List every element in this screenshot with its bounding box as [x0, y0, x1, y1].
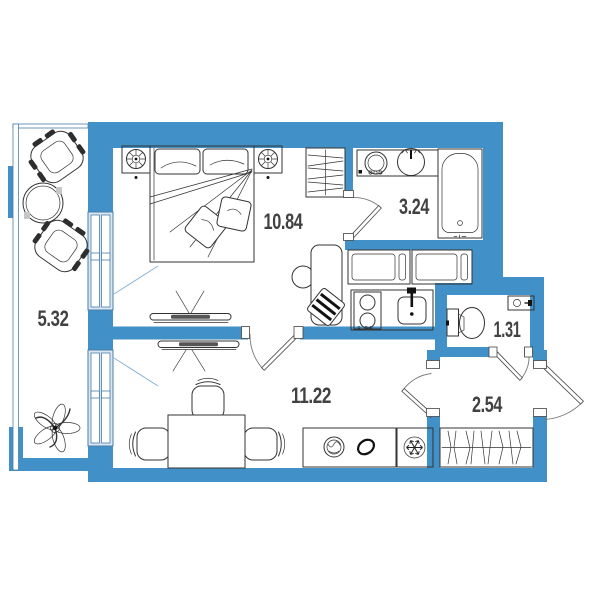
room-label-living: 11.22: [291, 383, 331, 408]
window-opening-indicator: [114, 266, 158, 294]
kitchen-sink-icon: [398, 288, 426, 325]
floor-plan-page: 5.32 10.84 3.24 11.22 1.31 2.54: [0, 0, 600, 600]
hall-wardrobe-icon: [440, 428, 533, 467]
window-opening-indicator: [114, 358, 158, 386]
upper-cabinet-icon: [412, 250, 472, 284]
kitchen-counter: [351, 288, 433, 331]
room-label-balcony: 5.32: [38, 306, 69, 331]
wardrobe-icon: [306, 148, 345, 197]
room-bedroom: [122, 146, 346, 327]
desk-icon: [292, 245, 346, 327]
nightstand-icon: [254, 146, 282, 179]
room-balcony: [21, 121, 98, 454]
washing-machine-icon: [359, 152, 388, 174]
stove-icon: [354, 292, 381, 329]
toilet-icon: [446, 308, 485, 339]
throw-pillow-icon: [216, 196, 252, 232]
room-label-bedroom: 10.84: [264, 209, 304, 234]
room-hallway: [440, 428, 533, 467]
tv-bedroom-icon: [150, 291, 231, 323]
decor-bowl-icon: [355, 437, 376, 457]
double-bed-icon: [150, 146, 254, 262]
bathtub-icon: [438, 149, 482, 238]
room-wc: [446, 296, 534, 339]
room-living: [129, 341, 433, 468]
snowflake-icon: [404, 437, 425, 458]
bottom-counter: [303, 428, 433, 467]
room-label-wc: 1.31: [494, 317, 521, 342]
nightstand-icon: [122, 146, 150, 179]
door-wc: [493, 350, 529, 381]
door-living-partition: [250, 332, 300, 371]
upper-cabinet-icon: [348, 250, 410, 284]
floor-plan-canvas: 5.32 10.84 3.24 11.22 1.31 2.54: [0, 0, 600, 600]
dining-table-icon: [168, 415, 245, 468]
chair-icon: [129, 428, 170, 460]
washer-sink-counter: [357, 149, 438, 177]
round-table-icon: [23, 183, 63, 223]
lounge-chair-icon: [27, 210, 97, 278]
window-bedroom: [88, 212, 158, 310]
counter-washer-icon: [324, 437, 344, 457]
tv-living-icon: [158, 341, 239, 371]
chair-icon: [192, 378, 224, 419]
lounge-chair-icon: [21, 121, 91, 189]
dining-set: [129, 378, 285, 468]
washbasin-icon: [398, 149, 425, 176]
chair-icon: [244, 428, 285, 460]
plant-icon: [32, 403, 80, 454]
room-label-hallway: 2.54: [472, 392, 503, 417]
room-label-bathroom: 3.24: [399, 194, 430, 219]
